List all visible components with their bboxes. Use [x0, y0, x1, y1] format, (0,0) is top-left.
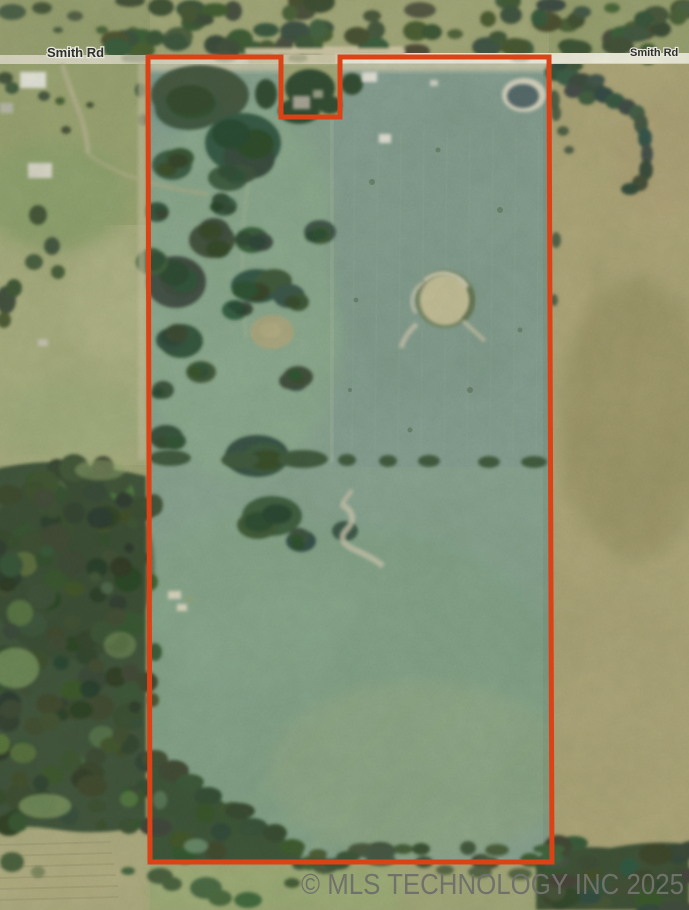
svg-text:© MLS TECHNOLOGY INC 2025: © MLS TECHNOLOGY INC 2025: [301, 869, 684, 901]
svg-text:Smith Rd: Smith Rd: [47, 45, 104, 60]
svg-text:Smith Rd: Smith Rd: [630, 47, 678, 59]
